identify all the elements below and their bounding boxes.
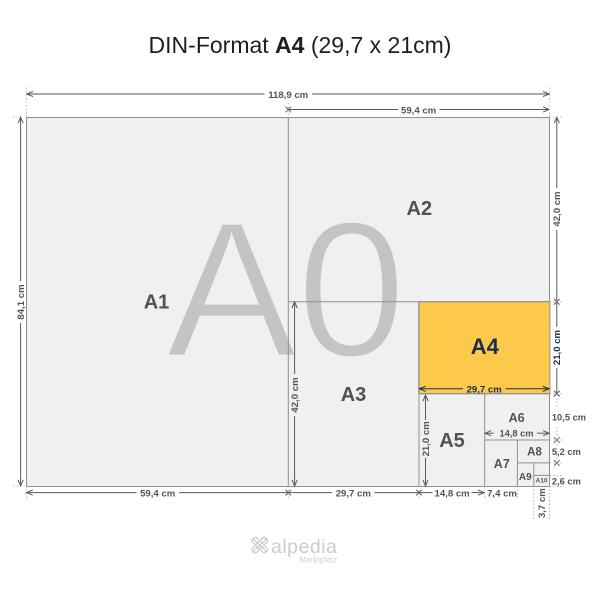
svg-text:5,2 cm: 5,2 cm	[552, 447, 581, 457]
svg-text:A0: A0	[166, 181, 406, 397]
svg-text:A8: A8	[527, 447, 542, 459]
svg-text:21,0 cm: 21,0 cm	[421, 421, 432, 456]
svg-text:A10: A10	[536, 478, 548, 485]
svg-text:7,4 cm: 7,4 cm	[487, 489, 517, 500]
svg-text:29,7 cm: 29,7 cm	[467, 385, 502, 396]
svg-text:A2: A2	[407, 198, 433, 220]
svg-text:10,5 cm: 10,5 cm	[552, 413, 586, 423]
svg-text:A4: A4	[471, 334, 500, 359]
svg-text:118,9 cm: 118,9 cm	[268, 90, 308, 101]
svg-text:DIN-Format A4 (29,7 x 21cm): DIN-Format A4 (29,7 x 21cm)	[149, 32, 452, 58]
svg-text:42,0 cm: 42,0 cm	[290, 377, 301, 412]
svg-text:A6: A6	[509, 411, 525, 425]
svg-text:Marktplatz: Marktplatz	[299, 556, 337, 565]
svg-text:84,1 cm: 84,1 cm	[16, 284, 27, 319]
svg-text:29,7 cm: 29,7 cm	[336, 489, 371, 500]
svg-text:14,8 cm: 14,8 cm	[434, 489, 469, 500]
svg-text:21,0 cm: 21,0 cm	[552, 330, 563, 365]
svg-text:59,4 cm: 59,4 cm	[140, 489, 175, 500]
svg-text:14,8 cm: 14,8 cm	[499, 429, 533, 439]
svg-text:59,4 cm: 59,4 cm	[401, 105, 436, 116]
svg-text:A1: A1	[144, 292, 170, 314]
svg-text:A7: A7	[494, 457, 510, 471]
svg-text:42,0 cm: 42,0 cm	[552, 191, 563, 226]
svg-text:A5: A5	[439, 430, 465, 452]
svg-text:A9: A9	[519, 472, 532, 483]
svg-text:3,7 cm: 3,7 cm	[537, 488, 548, 518]
svg-text:2,6 cm: 2,6 cm	[552, 476, 581, 486]
svg-text:A3: A3	[341, 384, 367, 406]
